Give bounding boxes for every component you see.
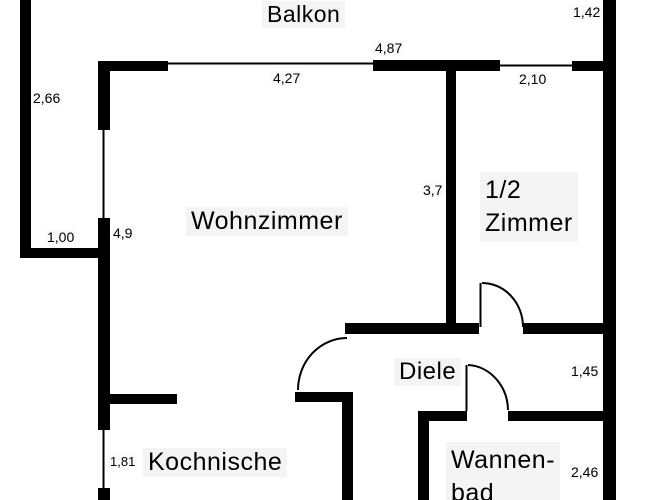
wall-wannenbad-top-right bbox=[508, 411, 603, 421]
dimension-balkon-front: 4,87 bbox=[373, 41, 404, 55]
floorplan-drawing bbox=[0, 0, 650, 500]
dimension-left-entry: 1,00 bbox=[45, 230, 76, 244]
door-arc-halbzimmer bbox=[482, 283, 523, 327]
wall-right-outer bbox=[603, 0, 616, 500]
room-label-halbzimmer: 1/2 Zimmer bbox=[480, 172, 578, 242]
wall-divider-halbzimmer bbox=[446, 62, 456, 332]
room-label-kochnische: Kochnische bbox=[143, 448, 287, 477]
dimension-halbzimmer-window: 2,10 bbox=[517, 72, 548, 86]
wall-diele-top-right bbox=[523, 323, 603, 334]
room-label-wannenbad-line1: Wannen- bbox=[451, 444, 555, 477]
wall-top-left bbox=[98, 61, 168, 71]
room-label-halbzimmer-line1: 1/2 bbox=[485, 174, 573, 207]
dimension-diele-right: 1,45 bbox=[569, 364, 600, 378]
dimension-wohnzimmer-left: 4,9 bbox=[111, 226, 134, 240]
wall-wannenbad-left bbox=[418, 411, 429, 500]
wall-inner-left-bottom bbox=[98, 488, 110, 500]
room-label-wohnzimmer: Wohnzimmer bbox=[186, 207, 348, 236]
floor-plan: Balkon Wohnzimmer 1/2 Zimmer Diele Kochn… bbox=[0, 0, 650, 500]
room-label-diele: Diele bbox=[394, 358, 461, 386]
room-label-wannenbad: Wannen- bad bbox=[446, 442, 560, 500]
wall-left-entry bbox=[20, 248, 108, 258]
wall-top-mid bbox=[373, 60, 500, 71]
dimension-divider-wall: 3,7 bbox=[421, 183, 444, 197]
dimension-left-outer: 2,66 bbox=[31, 91, 62, 105]
room-label-wannenbad-line2: bad bbox=[451, 477, 555, 500]
wall-kochnische-top-left bbox=[98, 394, 177, 404]
room-label-balkon: Balkon bbox=[262, 1, 345, 28]
wall-left-outer bbox=[20, 0, 31, 258]
door-arc-kochnische bbox=[298, 338, 347, 390]
wall-kochnische-right bbox=[342, 392, 353, 500]
dimension-kochnische-window: 1,81 bbox=[108, 455, 137, 468]
wall-diele-top-left bbox=[345, 323, 479, 334]
wall-inner-left-top bbox=[98, 61, 110, 130]
dimension-wohnzimmer-window: 4,27 bbox=[271, 71, 302, 85]
room-label-halbzimmer-line2: Zimmer bbox=[485, 207, 573, 240]
door-arc-wannenbad bbox=[468, 365, 508, 410]
dimension-wannenbad-right: 2,46 bbox=[569, 465, 600, 479]
dimension-balkon-right: 1,42 bbox=[571, 5, 602, 19]
wall-top-right bbox=[572, 61, 605, 71]
